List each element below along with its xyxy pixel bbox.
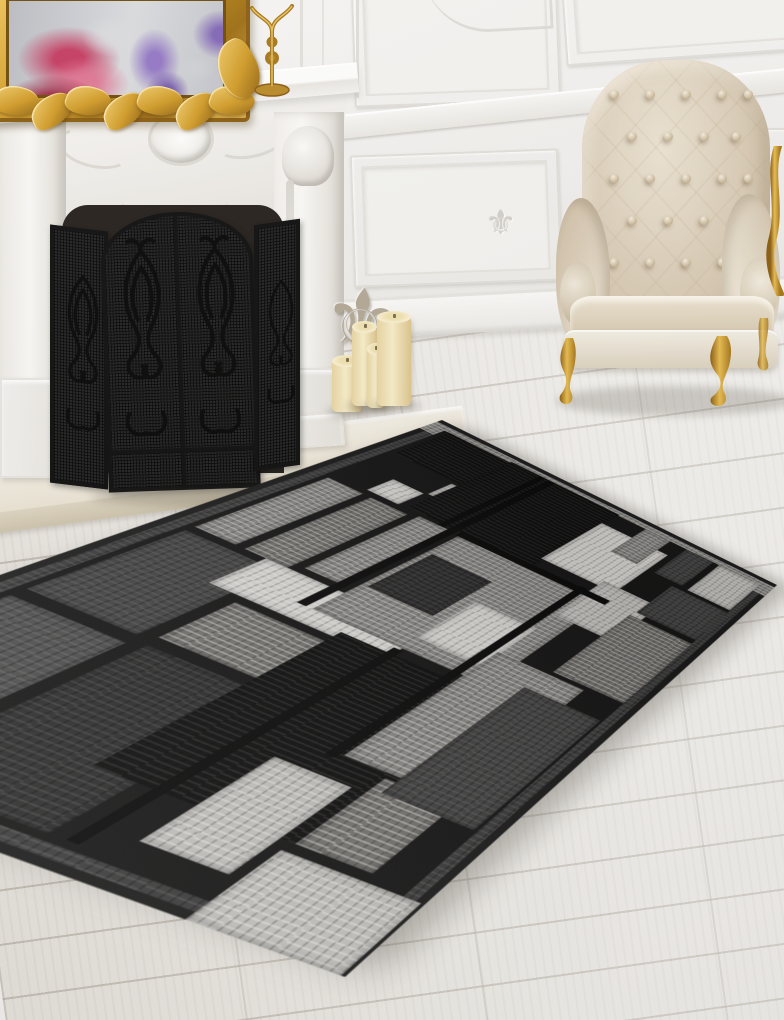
chair-gold-leg-front-left [550, 338, 594, 408]
fireplace-volute-carving [282, 126, 334, 186]
tuft-button [682, 90, 691, 99]
fire-screen-left-panel [50, 224, 108, 489]
tuft-button [718, 174, 727, 183]
room-photo: ⚜ ⚜ [0, 0, 784, 1020]
flower-reflection [176, 56, 215, 82]
candle-wick [393, 314, 396, 318]
tuft-button [610, 174, 619, 183]
tuft-button [646, 174, 655, 183]
tuft-button [628, 132, 637, 141]
tuft-button [628, 216, 637, 225]
side-table-gold-leg [762, 146, 784, 296]
fire-screen-center-panel [99, 209, 261, 492]
tuft-button [610, 90, 619, 99]
screen-scroll-motif [104, 232, 184, 474]
wainscot-panel-inner [361, 160, 551, 276]
gold-candelabra [240, 0, 304, 100]
wall-fleur-ornament: ⚜ [486, 206, 516, 240]
candle-wick [364, 324, 367, 328]
wainscot-panel [350, 148, 562, 287]
tuft-button [744, 174, 753, 183]
tuft-button [610, 258, 619, 267]
chair-gold-leg-rear [752, 318, 776, 372]
pillar-candle [377, 316, 411, 406]
candle-wick [346, 358, 349, 362]
tuft-button [646, 258, 655, 267]
wall-panel-inner [570, 0, 784, 54]
tuft-button [700, 132, 709, 141]
chair-gold-leg-front-right [696, 336, 752, 408]
tuft-button [664, 132, 673, 141]
tuft-button [732, 132, 741, 141]
tuft-button [718, 90, 727, 99]
fire-screen-right-panel [254, 219, 300, 471]
screen-scroll-motif [178, 229, 258, 471]
tuft-button [744, 90, 753, 99]
screen-scroll-motif [258, 222, 304, 474]
tuft-button [664, 216, 673, 225]
tuft-button [682, 258, 691, 267]
tuft-button [700, 216, 709, 225]
tuft-button [646, 90, 655, 99]
tuft-button [682, 174, 691, 183]
mirror-glass [6, 0, 226, 98]
